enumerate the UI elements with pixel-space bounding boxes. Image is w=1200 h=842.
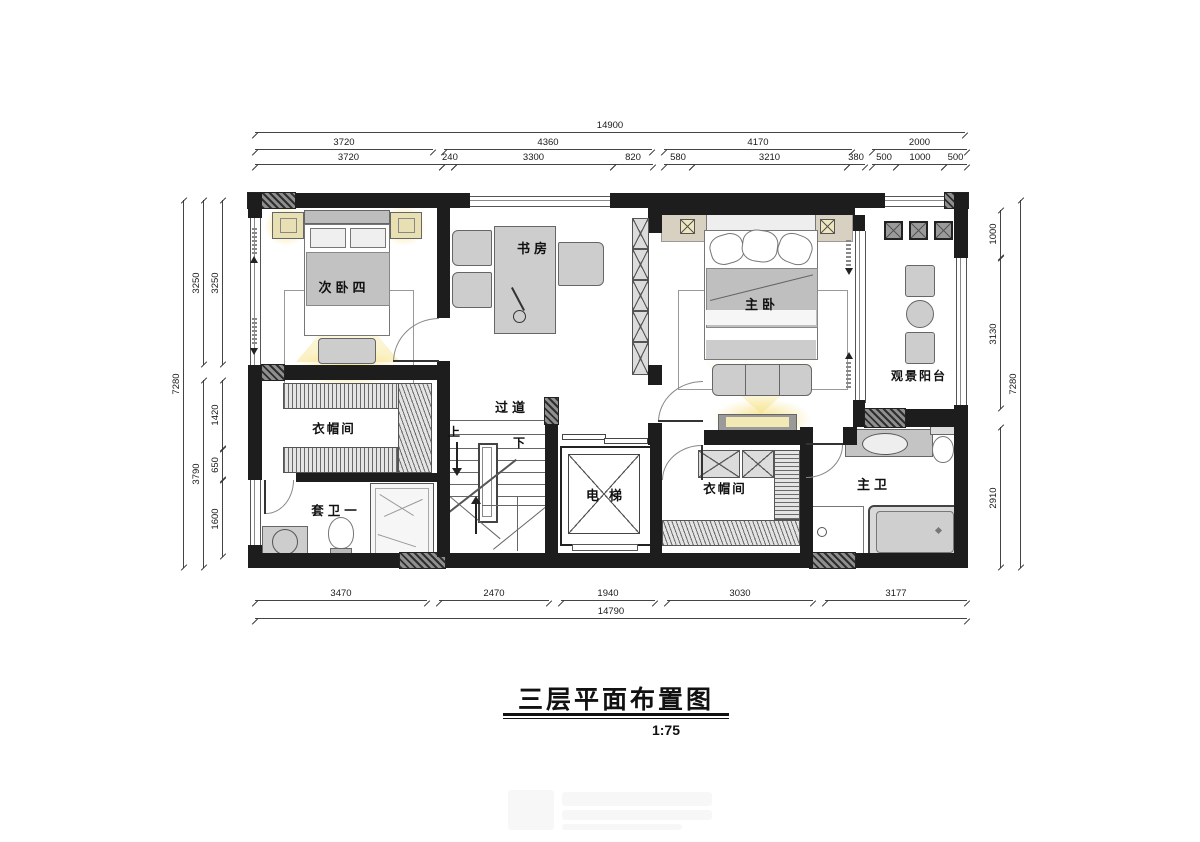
stair-arrow-shaft	[475, 504, 477, 534]
dim-left-total: 7280	[183, 200, 196, 568]
dim-top: 580	[664, 152, 692, 165]
wardrobe	[662, 520, 800, 546]
cabinet-column	[632, 342, 649, 375]
stair-arrow-up	[471, 496, 481, 504]
desk-chair	[558, 242, 604, 286]
dim-bottom-total: 14790	[255, 606, 967, 619]
chair	[452, 272, 492, 308]
window-code-mark	[252, 228, 257, 254]
stair-tread	[450, 434, 545, 435]
wall	[954, 193, 968, 258]
desk-lamp-head	[513, 310, 526, 323]
drawing-scale: 1:75	[505, 722, 680, 738]
sink-basin	[862, 433, 908, 455]
balcony-chair	[905, 332, 935, 364]
dim-bottom: 3177	[825, 588, 967, 601]
stair-winder	[482, 505, 545, 506]
dim-top: 2000	[872, 137, 967, 150]
dim-left: 1600	[222, 480, 235, 557]
dim-top: 500	[872, 152, 896, 165]
wall	[248, 553, 968, 568]
plant	[909, 221, 928, 240]
cabinet-column	[632, 218, 649, 249]
window	[885, 196, 945, 207]
nightstand-top	[398, 218, 415, 233]
nightstand-top	[280, 218, 297, 233]
dim-top: 3210	[692, 152, 847, 165]
stair-tread	[450, 420, 545, 421]
floor-plan-canvas: 14900 3720 4360 4170 2000 3720 240 3300 …	[0, 0, 1200, 842]
dim-top: 500	[944, 152, 967, 165]
balcony-chair	[905, 265, 935, 297]
door-arc-master-bath	[806, 445, 843, 478]
stair-label-down: 下	[513, 434, 525, 451]
room-label-bedroom4: 次卧四	[296, 277, 392, 296]
stair-arrow-down	[452, 468, 462, 476]
wall	[660, 193, 855, 215]
wall	[437, 380, 450, 557]
wall	[296, 473, 437, 482]
dim-right: 1000	[1000, 210, 1013, 258]
wall	[704, 430, 804, 445]
bed-bench	[318, 338, 376, 364]
lamp-icon	[680, 219, 695, 234]
watermark	[508, 790, 554, 830]
window-code-mark	[252, 318, 257, 344]
dim-top-total: 14900	[255, 120, 965, 133]
elevator-door	[604, 438, 648, 444]
wall	[295, 193, 470, 208]
door-leaf	[658, 420, 703, 422]
bench-divider	[779, 365, 780, 395]
window-arrow	[250, 256, 258, 263]
window-arrow	[845, 268, 853, 275]
room-label-balcony: 观景阳台	[874, 367, 964, 384]
dim-top: 4170	[664, 137, 852, 150]
window	[855, 231, 866, 403]
pillow	[350, 228, 386, 248]
wardrobe	[283, 447, 398, 473]
wall-hatch	[810, 553, 855, 568]
wall	[648, 430, 662, 445]
bed-bench	[712, 364, 812, 396]
drawing-title: 三层平面布置图	[505, 680, 727, 716]
dim-top: 3300	[454, 152, 613, 165]
door-arc-suite-bath	[266, 480, 294, 514]
door-leaf	[806, 443, 843, 445]
window	[470, 196, 610, 207]
stair-arrow-shaft	[456, 442, 458, 470]
dim-top: 1000	[896, 152, 944, 165]
dim-right-total: 7280	[1020, 200, 1033, 568]
dim-bottom: 3470	[255, 588, 427, 601]
shower-head	[817, 527, 827, 537]
window-arrow	[845, 352, 853, 359]
room-label-master-bath: 主卫	[844, 474, 904, 493]
room-label-elevator: 电梯	[560, 485, 648, 504]
wall	[648, 365, 662, 385]
chair	[452, 230, 492, 266]
door-leaf	[264, 480, 266, 514]
door-leaf	[701, 445, 703, 480]
title-underline-thick	[503, 713, 729, 716]
window	[250, 480, 261, 545]
wardrobe	[774, 450, 800, 520]
plant	[934, 221, 953, 240]
sink-basin	[272, 529, 298, 555]
elevator-sill	[572, 544, 638, 551]
cabinet	[698, 450, 740, 478]
dim-top: 820	[613, 152, 653, 165]
wardrobe	[283, 383, 403, 409]
cabinet	[742, 450, 774, 478]
cabinet-column	[632, 311, 649, 342]
wall	[853, 215, 865, 231]
dim-bottom: 2470	[439, 588, 549, 601]
wall	[437, 208, 450, 318]
wardrobe	[398, 383, 432, 473]
title-underline-thin	[503, 718, 729, 719]
door-arc-cloakroom-right	[662, 445, 702, 480]
toilet-tank	[930, 426, 956, 435]
balcony-table	[906, 300, 934, 328]
bed-foot	[706, 340, 816, 359]
dim-top: 3720	[255, 152, 442, 165]
lamp-icon	[820, 219, 835, 234]
watermark	[562, 810, 712, 820]
cabinet-column	[632, 249, 649, 280]
plant	[884, 221, 903, 240]
dim-left: 1420	[222, 380, 235, 449]
dim-left: 3250	[222, 200, 235, 365]
room-label-cloakroom-left: 衣帽间	[296, 418, 372, 437]
dim-top: 380	[847, 152, 865, 165]
dim-right: 2910	[1000, 427, 1013, 568]
room-label-study: 书房	[504, 238, 564, 257]
window-arrow	[250, 348, 258, 355]
dim-top: 3720	[255, 137, 433, 150]
window-code-mark	[846, 240, 851, 266]
room-label-cloakroom-right: 衣帽间	[686, 478, 764, 497]
room-label-suite-bath: 套卫一	[296, 500, 376, 519]
bathtub-inner	[876, 511, 954, 553]
toilet	[932, 436, 954, 463]
wall-hatch	[545, 398, 558, 424]
dim-bottom: 3030	[667, 588, 813, 601]
elevator-door	[562, 434, 606, 440]
wall	[855, 193, 885, 208]
wall	[954, 405, 968, 568]
door-leaf	[393, 360, 439, 362]
toilet	[328, 517, 354, 549]
door-arc-master	[658, 381, 703, 422]
room-label-corridor: 过道	[486, 397, 538, 416]
bench-divider	[745, 365, 746, 395]
watermark	[562, 824, 682, 830]
cabinet-column	[632, 280, 649, 311]
dim-bottom: 1940	[561, 588, 655, 601]
dim-top: 240	[442, 152, 454, 165]
room-label-master: 主卧	[718, 294, 806, 313]
wall	[545, 424, 558, 450]
window-code-mark	[846, 362, 851, 388]
dim-left: 650	[222, 449, 235, 480]
watermark	[562, 792, 712, 806]
wall	[248, 365, 262, 480]
wall-hatch	[865, 409, 905, 427]
pillow	[310, 228, 346, 248]
bed-headboard	[304, 210, 390, 224]
wall	[248, 193, 262, 218]
wall	[843, 427, 857, 445]
wall-hatch	[262, 365, 284, 380]
stair-label-up: 上	[448, 423, 460, 440]
wall	[545, 450, 558, 568]
tv-cabinet-glow	[726, 417, 789, 427]
wall	[648, 193, 662, 233]
dim-top: 4360	[444, 137, 652, 150]
stair-winder	[493, 506, 546, 550]
